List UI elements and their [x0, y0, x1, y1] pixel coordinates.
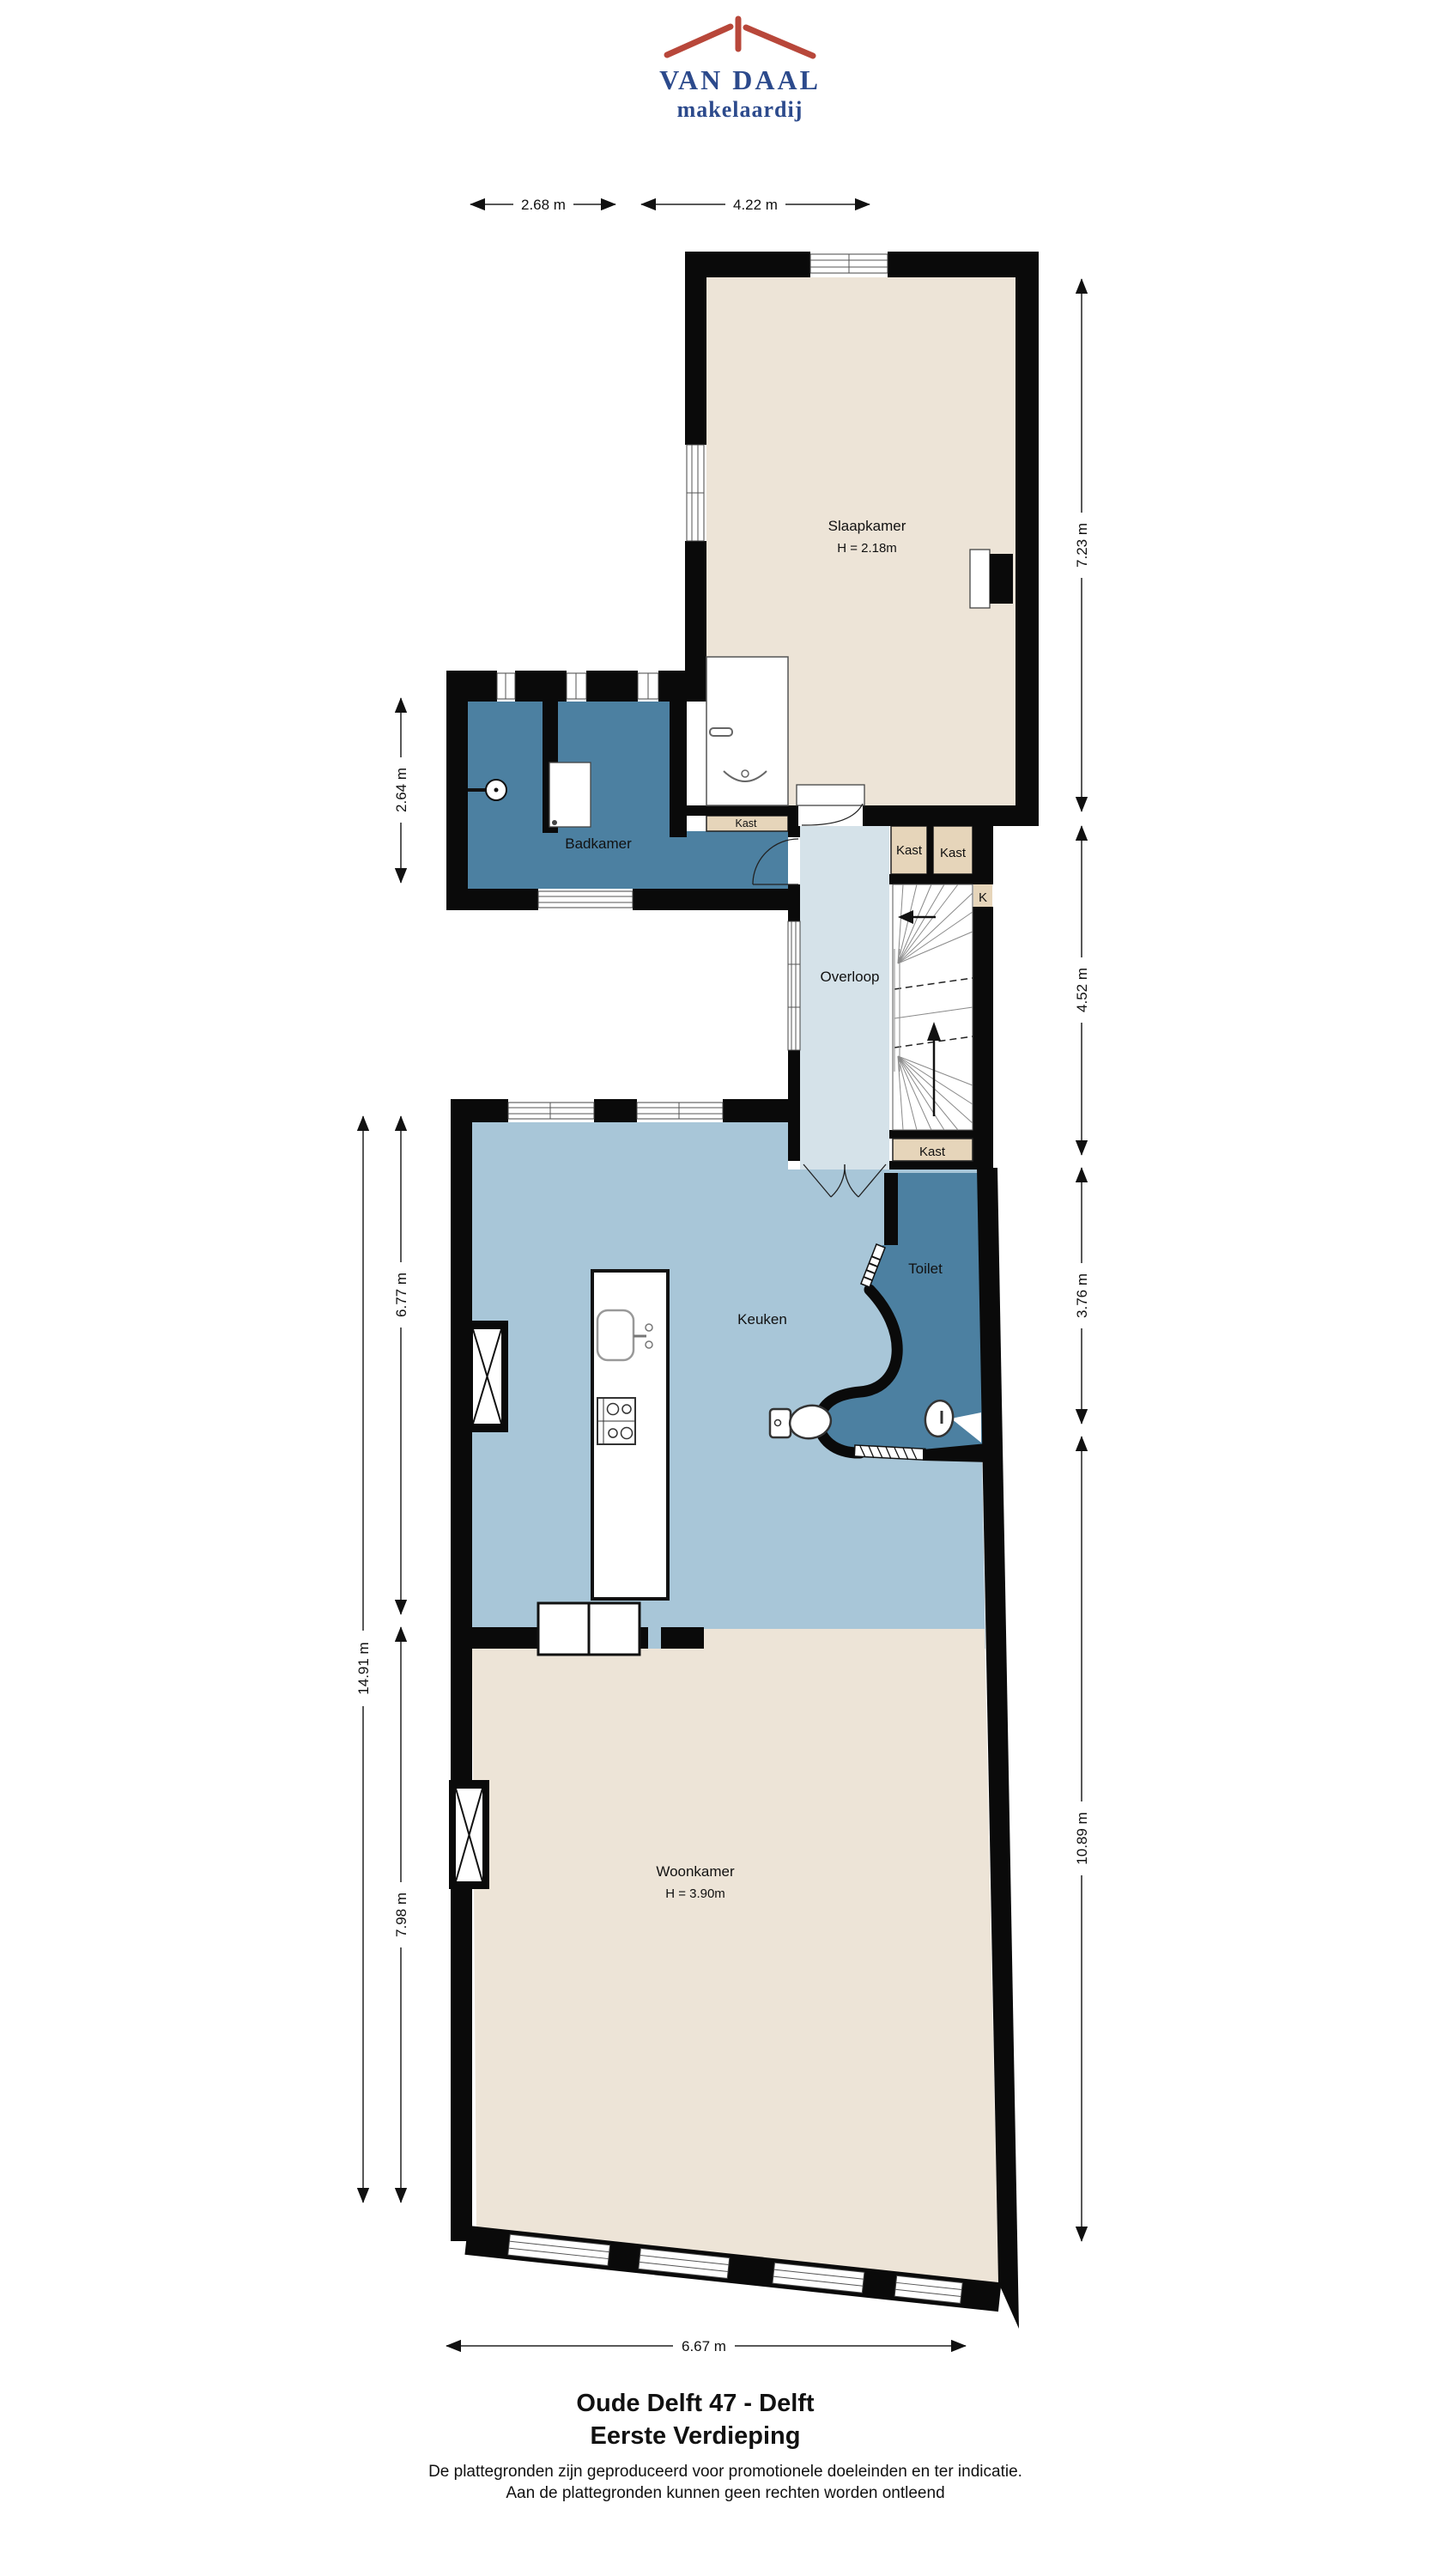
keuken-window-top-2 — [637, 1103, 723, 1119]
dim-left-badkamer: 2.64 m — [393, 768, 409, 812]
dim-top-left: 2.68 m — [521, 197, 566, 213]
kast-k-label: K — [979, 890, 987, 905]
woonkamer-height: H = 3.90m — [665, 1886, 725, 1901]
badkamer-passage-floor — [670, 831, 788, 889]
woonkamer-fireplace — [449, 1780, 489, 1889]
plan-subtitle: Eerste Verdieping — [591, 2422, 801, 2450]
floorplan-page: VAN DAAL makelaardij — [0, 0, 1449, 2576]
kast-onder-label: Kast — [919, 1145, 946, 1159]
dim-left-totaal: 14.91 m — [355, 1642, 372, 1694]
kitchen-island — [592, 1271, 668, 1599]
dim-left-keuken: 6.77 m — [393, 1273, 409, 1317]
washbasin-unit — [706, 657, 788, 805]
dim-left-woonkamer: 7.98 m — [393, 1893, 409, 1937]
overloop-label: Overloop — [821, 969, 880, 985]
slaapkamer-height: H = 2.18m — [837, 541, 897, 556]
overloop-floor — [800, 826, 889, 1170]
overloop-window-left — [788, 921, 800, 1050]
keuken-label: Keuken — [737, 1311, 787, 1327]
dim-right-woonkamer: 10.89 m — [1074, 1812, 1090, 1864]
slaapkamer-label: Slaapkamer — [828, 518, 906, 534]
woonkamer-floor — [472, 1629, 998, 2282]
floorplan-canvas: VAN DAAL makelaardij — [0, 0, 1449, 2576]
badkamer-window-bottom — [538, 891, 633, 908]
logo-name: VAN DAAL — [659, 64, 821, 95]
island-stove — [597, 1398, 635, 1444]
kast-links-label: Kast — [896, 843, 923, 858]
toilet-label: Toilet — [908, 1261, 943, 1277]
caption: Oude Delft 47 - Delft Eerste Verdieping … — [428, 2390, 1022, 2502]
disclaimer-line2: Aan de plattegronden kunnen geen rechten… — [506, 2484, 944, 2502]
keuken-window-top-1 — [508, 1103, 594, 1119]
dim-right-keuken: 3.76 m — [1074, 1273, 1090, 1318]
badkamer-label: Badkamer — [565, 835, 632, 852]
slaapkamer-window-top — [810, 254, 888, 273]
dim-bottom: 6.67 m — [682, 2338, 726, 2354]
dim-right-slaapkamer: 7.23 m — [1074, 523, 1090, 568]
kast-rechts-label: Kast — [940, 846, 967, 860]
logo-tagline: makelaardij — [677, 97, 803, 122]
island-sink — [597, 1310, 634, 1360]
slaapkamer-window-left — [687, 445, 704, 541]
plan-title: Oude Delft 47 - Delft — [576, 2390, 814, 2417]
agency-logo: VAN DAAL makelaardij — [659, 19, 821, 122]
floors — [468, 277, 1016, 2282]
boundary-cabinets — [538, 1603, 640, 1655]
dim-top-right: 4.22 m — [733, 197, 778, 213]
roof-icon — [667, 19, 813, 56]
woonkamer-label: Woonkamer — [656, 1863, 735, 1880]
dim-right-overloop: 4.52 m — [1074, 968, 1090, 1012]
disclaimer-line1: De plattegronden zijn geproduceerd voor … — [428, 2463, 1022, 2481]
keuken-fireplace — [466, 1321, 508, 1432]
kast-slaapkamer-label: Kast — [735, 817, 757, 829]
